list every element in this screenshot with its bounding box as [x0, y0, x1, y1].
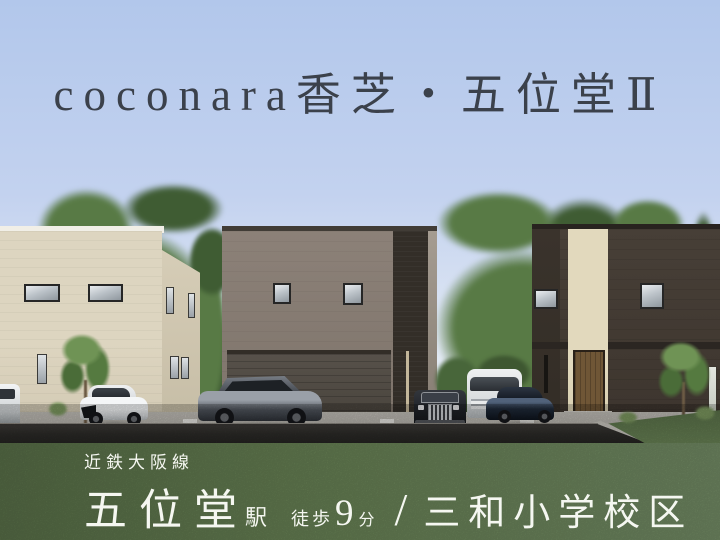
access-line: 五位堂 駅 徒歩 9 分 / 三和小学校区	[84, 476, 693, 538]
classic-headlight-right	[453, 405, 459, 410]
station-name: 五位堂	[84, 476, 249, 538]
garden-tree-right-canopy	[652, 336, 716, 406]
house-middle-window-1	[273, 283, 291, 304]
page-title: coconara香芝・五位堂Ⅱ	[0, 58, 720, 123]
black-classic-windshield	[421, 392, 459, 403]
bush-left	[46, 400, 70, 418]
house-left-side-window-2	[188, 293, 195, 318]
house-left-side-window-1	[166, 287, 174, 314]
station-suffix: 駅	[245, 500, 267, 532]
verge-plant-1	[616, 410, 640, 425]
walk-minutes: 9	[335, 492, 354, 535]
separator-slash: /	[395, 483, 408, 536]
coupe-wheel-front	[538, 410, 551, 423]
house-right-window	[640, 283, 664, 309]
house-middle-window-2	[343, 283, 363, 305]
house-right-downspout	[544, 355, 548, 393]
footer-info: 近鉄大阪線 五位堂 駅 徒歩 9 分 / 三和小学校区	[84, 448, 693, 538]
house-left-window-2	[88, 284, 123, 302]
house-right-corner-window	[534, 289, 558, 309]
school-district: 三和小学校区	[423, 482, 693, 536]
advertisement-scene: coconara香芝・五位堂Ⅱ 近鉄大阪線 五位堂 駅 徒歩 9 分 / 三和小…	[0, 0, 720, 540]
classic-headlight-left	[418, 405, 424, 410]
coupe-wheel-rear	[498, 410, 511, 423]
walk-unit: 分	[359, 506, 375, 530]
house-right-entrance-door	[573, 350, 605, 414]
house-left-window-1	[24, 284, 60, 302]
house-left-lower-window	[37, 354, 47, 384]
house-right-floor-divider-left	[532, 342, 568, 349]
house-middle-door-light-strip	[406, 351, 409, 415]
house-left-side-wall	[162, 250, 200, 425]
rail-line-label: 近鉄大阪線	[84, 448, 693, 473]
verge-plant-2	[692, 404, 718, 422]
house-left-side-window-3	[170, 356, 179, 379]
walk-label: 徒歩	[291, 505, 333, 531]
black-classic-grille	[428, 404, 452, 421]
white-van-windshield	[0, 389, 15, 399]
house-left-side-window-4	[181, 357, 189, 379]
